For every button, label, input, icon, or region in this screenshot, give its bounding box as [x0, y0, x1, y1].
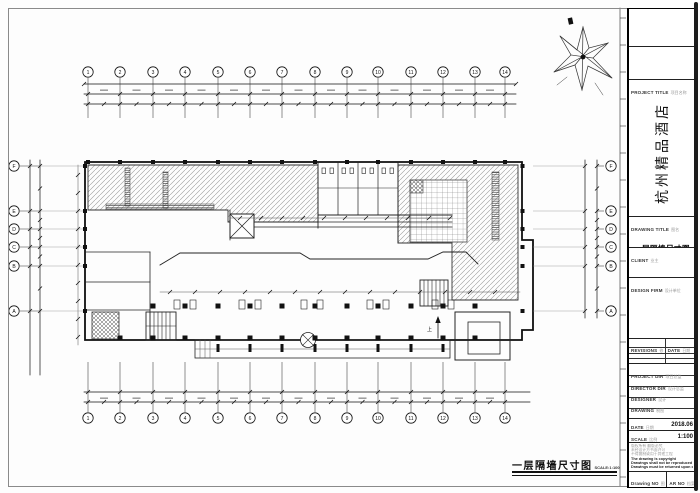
- scale-label-cn: 比例: [649, 437, 657, 442]
- svg-text:3: 3: [152, 416, 155, 422]
- drawing-title-section: DRAWING TITLE图名 一层隔墙尺寸图: [629, 216, 695, 247]
- up-arrow-label: 上: [427, 326, 432, 333]
- revisions-header: REVISIONS修改 DATE日期: [629, 339, 695, 348]
- svg-text:5: 5: [217, 70, 220, 76]
- svg-text:2: 2: [119, 70, 122, 76]
- scale-value: 1:100: [678, 434, 693, 440]
- svg-text:14: 14: [502, 70, 508, 76]
- client-label-cn: 业主: [650, 258, 658, 263]
- ar-no-label: AR NO: [669, 481, 685, 486]
- svg-text:1: 1: [87, 416, 90, 422]
- svg-text:F: F: [609, 164, 612, 170]
- page-edge: [694, 2, 698, 491]
- copyright-note-line: Drawings must be returned upon completio…: [631, 465, 693, 469]
- svg-text:C: C: [609, 245, 613, 251]
- date-value: 2018.06: [671, 422, 693, 428]
- caption-underline: [512, 471, 617, 473]
- svg-text:2: 2: [119, 416, 122, 422]
- svg-text:7: 7: [281, 416, 284, 422]
- svg-text:7: 7: [281, 70, 284, 76]
- drawing-sheet: 上 11223344556677889910101111121213131414…: [0, 0, 700, 493]
- svg-text:11: 11: [408, 416, 413, 422]
- drawing-no-label: Drawing NO: [631, 481, 659, 486]
- client-label: CLIENT: [631, 258, 648, 263]
- north-star-icon: [554, 17, 612, 95]
- svg-text:8: 8: [314, 70, 317, 76]
- field-row: CHECKED BY审核: [629, 408, 695, 418]
- date-label-cn: 日期: [646, 425, 654, 430]
- floor-plan: 上 11223344556677889910101111121213131414…: [0, 0, 700, 493]
- client-section: CLIENT业主: [629, 247, 695, 277]
- scale-label: SCALE: [631, 437, 647, 442]
- design-firm-label-cn: 设计单位: [665, 288, 681, 293]
- svg-text:13: 13: [472, 416, 478, 422]
- svg-text:12: 12: [440, 70, 446, 76]
- svg-text:4: 4: [184, 416, 187, 422]
- scale-section: SCALE比例 1:100: [629, 430, 695, 442]
- project-title-vertical: 杭州精品酒店: [652, 102, 672, 204]
- svg-text:10: 10: [375, 416, 381, 422]
- svg-text:14: 14: [502, 416, 508, 422]
- svg-text:D: D: [12, 227, 16, 233]
- svg-text:D: D: [609, 227, 613, 233]
- svg-text:11: 11: [408, 70, 413, 76]
- drawing-title-label: DRAWING TITLE: [631, 227, 669, 232]
- field-row: PROJECT DIR项目总监: [629, 364, 695, 375]
- title-block-spacer-2: [629, 46, 695, 79]
- title-block: PROJECT TITLE项目名称 杭州精品酒店 DRAWING TITLE图名…: [627, 8, 695, 488]
- numbers-section: Drawing NO图号 LF-2F-02 AR NO档案号: [629, 471, 695, 487]
- svg-text:3: 3: [152, 70, 155, 76]
- svg-text:8: 8: [314, 416, 317, 422]
- project-title-label: PROJECT TITLE: [631, 90, 669, 95]
- notes-section: 版权所有 翻版必究未经设计方书面许可不得复制或用于其他工程The drawing…: [629, 442, 695, 471]
- svg-text:6: 6: [249, 70, 252, 76]
- caption-underline-thin: [512, 475, 617, 476]
- date-label: DATE: [631, 425, 644, 430]
- svg-text:C: C: [12, 245, 16, 251]
- design-firm-label: DESIGN FIRM: [631, 288, 663, 293]
- revisions-section: REVISIONS修改 DATE日期: [629, 338, 695, 363]
- title-block-fields: PROJECT DIR项目总监DIRECTOR DIR设计总监DESIGNER设…: [629, 363, 695, 418]
- svg-text:10: 10: [375, 70, 381, 76]
- svg-text:9: 9: [346, 70, 349, 76]
- title-block-spacer-1: [629, 9, 695, 46]
- project-title-label-cn: 项目名称: [671, 90, 687, 95]
- svg-text:12: 12: [440, 416, 446, 422]
- drawing-title-label-cn: 图名: [671, 227, 679, 232]
- svg-text:13: 13: [472, 70, 478, 76]
- svg-text:5: 5: [217, 416, 220, 422]
- svg-text:1: 1: [87, 70, 90, 76]
- svg-text:4: 4: [184, 70, 187, 76]
- svg-text:9: 9: [346, 416, 349, 422]
- field-row: DRAWING制图: [629, 397, 695, 408]
- project-title-section: PROJECT TITLE项目名称 杭州精品酒店: [629, 79, 695, 216]
- field-row: DIRECTOR DIR设计总监: [629, 375, 695, 386]
- design-firm-section: DESIGN FIRM设计单位: [629, 277, 695, 338]
- svg-text:F: F: [12, 164, 15, 170]
- plan-caption-scale: SCALE:1:100: [595, 465, 620, 470]
- field-row: DESIGNER设计: [629, 386, 695, 397]
- svg-text:6: 6: [249, 416, 252, 422]
- date-section: DATE日期 2018.06: [629, 418, 695, 430]
